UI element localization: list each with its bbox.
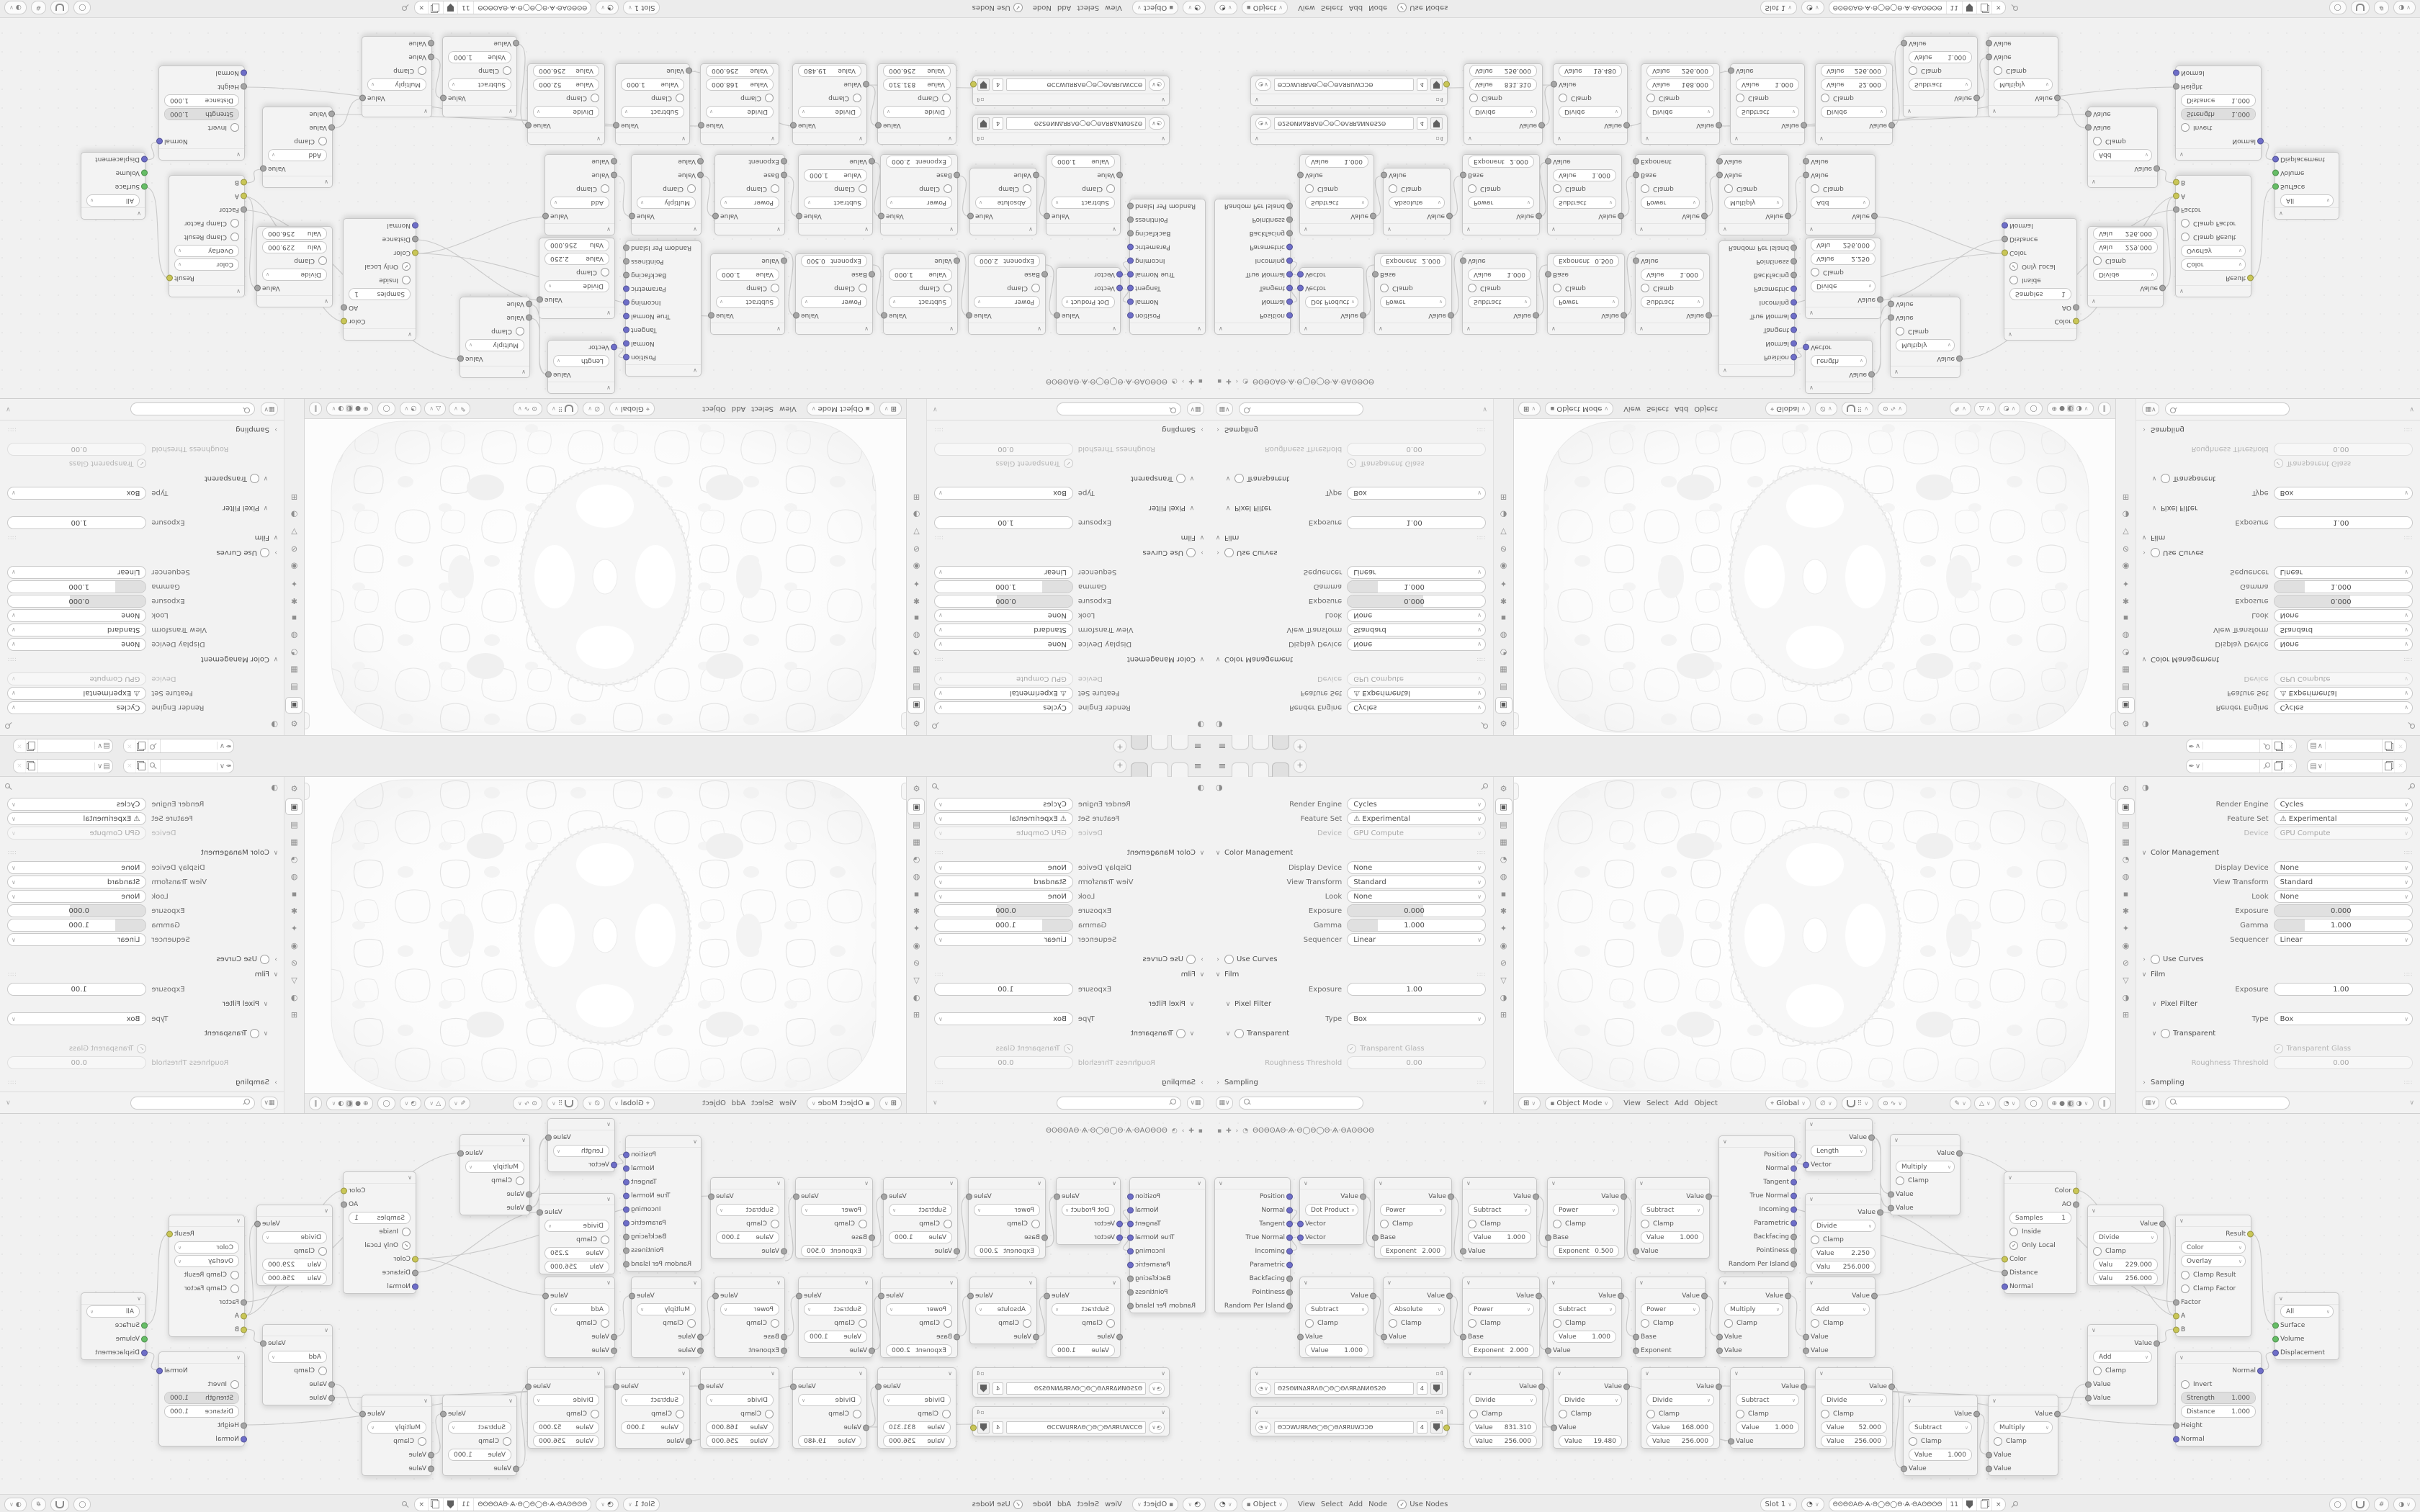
input-device[interactable]: GPU Compute∨ (7, 672, 146, 685)
workspace-tab-active[interactable] (1131, 762, 1148, 777)
operation-select[interactable]: Power∨ (1380, 1204, 1446, 1216)
output-socket[interactable] (1286, 285, 1293, 292)
properties-tab-constraints[interactable]: ⊘ (909, 955, 925, 971)
value-field-value[interactable]: Value52.000 (1821, 78, 1887, 91)
input-socket[interactable] (1986, 54, 1992, 60)
pin-icon[interactable] (148, 760, 161, 773)
input-render-engine[interactable]: Cycles∨ (934, 798, 1073, 811)
section-sampling[interactable]: ›Sampling∷∷ (7, 422, 279, 437)
properties-tab-physics[interactable]: ◉ (2118, 559, 2134, 574)
checkbox-clamp[interactable]: Clamp (616, 91, 689, 105)
section-pixel-filter[interactable]: ∨Pixel Filter (2141, 500, 2413, 516)
copy-icon[interactable] (1976, 1498, 1991, 1511)
node-node-group-2[interactable]: ∨▫4◔∨ΘƆƆWUЯRΛΘ◯Θ◯ΘΛЯRUWƆƆΘ4 (1250, 1406, 1448, 1436)
menu-select[interactable]: Select (1644, 405, 1672, 413)
operation-select[interactable]: Overlay∨ (2181, 245, 2246, 257)
output-socket[interactable] (1716, 1383, 1722, 1390)
input-display-device[interactable]: None∨ (934, 638, 1073, 651)
pivot-point[interactable]: ∅∨ (583, 402, 605, 415)
menu-select[interactable]: Select (748, 1099, 776, 1107)
properties-tab-tool[interactable]: ⚙ (909, 781, 925, 796)
node-header[interactable]: ∨ (2088, 1205, 2163, 1217)
input-socket[interactable] (141, 1349, 148, 1356)
input-socket[interactable] (526, 301, 532, 307)
output-socket[interactable] (1623, 122, 1630, 129)
material-users-count[interactable]: 11 (1946, 1498, 1962, 1511)
node-math-divide-a[interactable]: ∨ValueDivide∨ClampValue2.250Valu256.000 (1805, 238, 1881, 319)
properties-tab-particles[interactable]: ✦ (287, 576, 302, 591)
input-exposure[interactable]: 0.000 (7, 904, 146, 917)
output-socket[interactable] (1791, 300, 1797, 306)
checkbox-clamp[interactable]: Clamp (1719, 182, 1788, 196)
properties-tab-particles[interactable]: ✦ (2118, 576, 2134, 591)
checkbox-clamp[interactable]: Clamp (715, 182, 784, 196)
value-field-value[interactable]: Value1.000 (1468, 1231, 1531, 1243)
node-math-subtract-4[interactable]: ∨ValueSubtract∨ClampValue1.000Value (798, 1277, 873, 1358)
input-socket[interactable] (697, 158, 704, 165)
input-roughness-threshold[interactable]: 0.00 (934, 443, 1073, 456)
checkbox-clamp[interactable]: Clamp (1463, 1316, 1539, 1330)
value-field-value[interactable]: Value1.000 (889, 269, 952, 281)
output-socket[interactable] (1706, 312, 1712, 319)
output-socket[interactable] (613, 1383, 619, 1390)
node-math-divide-b[interactable]: ∨ValueDivide∨ClampValu229.000Valu256.000 (256, 226, 333, 307)
input-look[interactable]: None∨ (2274, 890, 2413, 903)
node-header[interactable]: ∨ (169, 285, 244, 297)
node-math-subtract-5[interactable]: ∨ValueSubtract∨ClampValue1.000Value (615, 1367, 690, 1449)
value-field-value[interactable]: Value1.000 (1305, 156, 1368, 168)
value-field-value[interactable]: Value52.000 (533, 1421, 599, 1434)
section-color-management[interactable]: ∨Color Management∷∷ (1214, 652, 1486, 667)
section-sampling[interactable]: ›Sampling∷∷ (2141, 1075, 2413, 1090)
output-socket[interactable] (875, 1383, 882, 1390)
value-field-value[interactable]: Value1.000 (1641, 1231, 1704, 1243)
properties-tab-particles[interactable]: ✦ (287, 921, 302, 936)
node-header[interactable]: ∨ (548, 382, 614, 393)
value-field-value[interactable]: Value256.000 (883, 1435, 951, 1447)
tool-measure[interactable]: △∨ (424, 402, 446, 415)
output-socket[interactable] (623, 258, 629, 265)
node-ambient-occlusion[interactable]: ∨ColorAOSamples1Inside✓Only LocalColorDi… (343, 218, 416, 341)
section-transparent[interactable]: ∨Transparent (934, 471, 1206, 486)
output-socket[interactable] (1701, 213, 1708, 220)
node-math-subtract-6[interactable]: ∨ValueSubtract∨ClampValue1.000Value (442, 36, 517, 117)
output-socket[interactable] (623, 1179, 629, 1185)
section-sampling[interactable]: ›Sampling∷∷ (934, 422, 1206, 437)
properties-tab-material[interactable]: ◑ (909, 990, 925, 1005)
operation-select[interactable]: Power∨ (974, 1204, 1040, 1216)
material-name[interactable]: ΘʘΘʘAΘ·Ѧ·Θ◯Θ◯Θ·Ѧ·ΘAʘΘʘΘ (1829, 1, 1946, 14)
mode-selector[interactable]: ▪Object Mode∨ (807, 1097, 875, 1110)
operation-select[interactable]: Divide∨ (1811, 1220, 1875, 1232)
properties-tab-object-data[interactable]: ▽ (2118, 973, 2134, 988)
material-users-count[interactable]: 11 (458, 1, 474, 14)
fake-user-icon[interactable] (1430, 79, 1443, 91)
material-users-count[interactable]: 11 (458, 1498, 474, 1511)
input-socket[interactable] (2173, 207, 2179, 213)
node-header[interactable]: ∨ (2088, 176, 2157, 187)
operation-select[interactable]: Divide∨ (798, 106, 861, 118)
output-socket[interactable] (1533, 312, 1539, 319)
tool-annotate[interactable]: ✎∨ (449, 1097, 470, 1110)
input-socket[interactable] (241, 1436, 247, 1442)
menu-node[interactable]: Node (1366, 4, 1390, 12)
output-socket[interactable] (966, 1193, 972, 1200)
node-math-divide-e[interactable]: ∨ValueDivide∨ClampValue168.000Value256.0… (700, 63, 779, 145)
input-display-device[interactable]: None∨ (7, 861, 146, 874)
node-header[interactable]: ∨ (701, 132, 779, 144)
node-math-power-1[interactable]: ∨ValuePower∨ClampBaseExponent2.000 (1374, 253, 1452, 335)
output-socket[interactable] (1801, 122, 1807, 129)
node-math-power-2[interactable]: ∨ValuePower∨ClampBaseExponent0.500 (1547, 1177, 1625, 1259)
output-socket[interactable] (1871, 213, 1878, 220)
node-header[interactable]: ∨ (1806, 307, 1881, 318)
output-socket[interactable] (341, 305, 347, 311)
node-header[interactable]: ∨ (1215, 323, 1290, 334)
section-film[interactable]: ∨Film∷∷ (934, 530, 1206, 545)
menu-select[interactable]: Select (1318, 1500, 1346, 1508)
output-socket[interactable] (1446, 1292, 1453, 1299)
node-header[interactable]: ∨ (528, 132, 604, 144)
input-feature-set[interactable]: ⚠ Experimental∨ (934, 687, 1073, 700)
properties-tab-particles[interactable]: ✦ (909, 576, 925, 591)
node-geometry-2[interactable]: ∨PositionNormalTangentTrue NormalIncomin… (1718, 240, 1795, 377)
node-header[interactable]: ∨ (881, 1277, 957, 1289)
menu-add[interactable]: Add (729, 1099, 748, 1107)
input-socket[interactable] (954, 1333, 960, 1340)
node-node-group-2[interactable]: ∨▫4◔∨ΘƆƆWUЯRΛΘ◯Θ◯ΘΛЯRUWƆƆΘ4 (1250, 76, 1448, 106)
properties-tab-physics[interactable]: ◉ (287, 559, 302, 574)
properties-tab-render[interactable]: ▣ (908, 798, 926, 815)
workspace-tab-active[interactable] (1131, 736, 1148, 750)
input-socket[interactable] (1633, 1248, 1639, 1254)
snap-target-button[interactable]: # (31, 1498, 47, 1511)
input-socket[interactable] (954, 258, 960, 264)
properties-tab-particles[interactable]: ✦ (909, 921, 925, 936)
node-material-output[interactable]: ∨All∨SurfaceVolumeDisplacement (2275, 1292, 2339, 1360)
node-math-divide-d[interactable]: ∨ValueDivide∨ClampValueValue19.480 (792, 1367, 867, 1449)
node-header[interactable]: ∨ (1719, 1277, 1788, 1289)
output-socket[interactable] (875, 122, 882, 129)
output-socket[interactable] (166, 275, 173, 282)
properties-tab-output[interactable]: ▤ (1496, 680, 1512, 695)
checkbox[interactable] (250, 1029, 259, 1038)
checkbox-clamp[interactable]: Clamp (970, 182, 1036, 196)
operation-select[interactable]: Power∨ (1468, 197, 1534, 209)
datablock-icon[interactable]: ◔∨ (1149, 1382, 1165, 1395)
properties-tab-texture[interactable]: ⊞ (2118, 490, 2134, 505)
section-pixel-filter[interactable]: ∨Pixel Filter (7, 500, 279, 516)
operation-select[interactable]: Overlay∨ (174, 1255, 239, 1267)
node-header[interactable]: ∨ (1719, 223, 1788, 235)
workspace-tab-1[interactable] (1232, 736, 1249, 750)
node-math-power-2[interactable]: ∨ValuePower∨ClampBaseExponent0.500 (795, 253, 873, 335)
input-socket[interactable] (412, 236, 418, 243)
input-socket[interactable] (1033, 172, 1039, 179)
section-performance[interactable]: ›Performance⁝≡∷∷ (934, 420, 1206, 422)
node-header[interactable]: ∨ (362, 105, 431, 117)
output-socket[interactable] (1791, 1261, 1797, 1267)
view-layer-selector[interactable]: ▤∨ × (2307, 739, 2407, 753)
overlays-toggle[interactable]: ◑∨ (2393, 1498, 2416, 1511)
input-socket[interactable] (697, 1333, 704, 1340)
node-header[interactable]: ∨ (1806, 1119, 1872, 1130)
copy-icon[interactable] (1976, 1, 1991, 14)
operation-select[interactable]: Absolute∨ (975, 1303, 1031, 1315)
input-socket[interactable] (2002, 250, 2008, 256)
input-socket[interactable] (1986, 40, 1992, 47)
output-socket[interactable] (629, 213, 635, 220)
output-socket[interactable] (1360, 312, 1366, 319)
editor-type-button[interactable]: ▦∨ (2142, 1097, 2159, 1110)
node-header[interactable]: ∨ (1731, 1368, 1804, 1380)
output-socket[interactable] (878, 1292, 884, 1299)
operation-select[interactable]: Add∨ (1811, 1303, 1870, 1315)
operation-select[interactable]: Divide∨ (262, 269, 327, 281)
input-socket[interactable] (611, 344, 617, 351)
snapping-toggle[interactable] (2351, 1498, 2370, 1511)
properties-tab-scene[interactable]: ◔ (909, 645, 925, 660)
node-math-divide-c[interactable]: ∨ValueDivide∨ClampValue831.310Value256.0… (1464, 63, 1543, 145)
output-socket[interactable] (1533, 1193, 1539, 1200)
input-socket[interactable] (1460, 172, 1466, 179)
scene-selector[interactable]: ✒∨ × (2186, 759, 2298, 773)
material-slot-selector[interactable]: Slot 1∨ (623, 1498, 660, 1511)
checkbox-clamp[interactable]: Clamp (1300, 1316, 1373, 1330)
copy-icon[interactable] (26, 760, 38, 773)
menu-view[interactable]: View (1621, 1099, 1644, 1107)
output-socket[interactable] (1791, 258, 1797, 265)
checkbox-clamp[interactable]: Clamp (1806, 266, 1881, 279)
checkbox-clamp[interactable]: Clamp (884, 1217, 957, 1230)
value-field-value[interactable]: Value2.250 (1811, 253, 1875, 265)
input-socket[interactable] (1986, 1465, 1992, 1472)
checkbox-clamp[interactable]: Clamp (796, 282, 872, 295)
value-field-valu[interactable]: Valu256.000 (2093, 1272, 2158, 1284)
output-socket[interactable] (2054, 1410, 2061, 1417)
output-socket[interactable] (967, 213, 974, 220)
shading-mode-switch[interactable]: ⊕●◐◑∨ (2047, 1097, 2094, 1110)
menu-view[interactable]: View (776, 405, 799, 413)
shading-mode-0[interactable]: ⊕ (2052, 1100, 2058, 1107)
checkbox-clamp[interactable]: Clamp (1806, 182, 1875, 196)
node-geometry-1[interactable]: ∨PositionNormalTangentTrue NormalIncomin… (1214, 199, 1291, 335)
node-header[interactable]: ∨ (1554, 132, 1627, 144)
checkbox-clamp[interactable]: Clamp (1989, 1434, 2058, 1448)
input-socket[interactable] (2002, 1269, 2008, 1276)
input-socket[interactable] (1297, 1333, 1304, 1340)
workspace-tab-active[interactable] (1272, 762, 1289, 777)
properties-tab-output[interactable]: ▤ (287, 680, 302, 695)
section-pixel-filter[interactable]: ∨Pixel Filter (7, 996, 279, 1012)
checkbox-clamp[interactable]: Clamp (1904, 1434, 1977, 1448)
output-socket[interactable] (793, 312, 799, 319)
output-socket[interactable] (1791, 1179, 1797, 1185)
value-field-value[interactable]: Value1.000 (889, 1231, 952, 1243)
input-render-engine[interactable]: Cycles∨ (2274, 701, 2413, 714)
operation-select[interactable]: Subtract∨ (1305, 197, 1368, 209)
input-type[interactable]: Box∨ (7, 1012, 146, 1025)
node-header[interactable]: ∨ (2176, 1215, 2251, 1227)
input-sequencer[interactable]: Linear∨ (7, 566, 146, 579)
node-vector-math-length[interactable]: ∨ValueLength∨Vector (1805, 1118, 1873, 1172)
section-transparent[interactable]: ∨Transparent (2141, 1026, 2413, 1041)
output-socket[interactable] (629, 1292, 635, 1299)
checkbox-clamp[interactable]: Clamp (362, 1434, 431, 1448)
input-socket[interactable] (1716, 1333, 1723, 1340)
node-header[interactable]: ∨ (793, 1368, 866, 1380)
output-socket[interactable] (2159, 285, 2166, 292)
collapsed-use-curves[interactable]: ›Use Curves (7, 545, 279, 560)
operation-select[interactable]: Divide∨ (883, 106, 951, 118)
properties-tab-modifiers[interactable]: ✱ (287, 593, 302, 608)
snapping-toggle[interactable] (2351, 1, 2370, 14)
node-math-divide-c[interactable]: ∨ValueDivide∨ClampValue831.310Value256.0… (1464, 1367, 1543, 1449)
shader-type-selector[interactable]: ▪Object∨ (1132, 1, 1179, 14)
group-name[interactable]: ΘƆƆWUЯRΛΘ◯Θ◯ΘΛЯRUWƆƆΘ (1274, 1421, 1414, 1434)
properties-tab-world[interactable]: ◍ (2118, 628, 2134, 643)
tool-measure[interactable]: △∨ (1974, 1097, 1996, 1110)
pin-icon[interactable] (2407, 721, 2414, 729)
input-socket[interactable] (2272, 1336, 2279, 1342)
section-pixel-filter[interactable]: ∨Pixel Filter (1214, 996, 1486, 1012)
value-field-exponent[interactable]: Exponent2.000 (1380, 255, 1446, 267)
operation-select[interactable]: Power∨ (1553, 296, 1619, 308)
operation-select[interactable]: Divide∨ (706, 1394, 774, 1406)
fake-user-icon[interactable] (977, 79, 990, 91)
output-socket[interactable] (1127, 258, 1134, 264)
checkbox-clamp[interactable]: Clamp (1464, 1407, 1542, 1421)
node-math-multiply-3[interactable]: ∨ValueMultiply∨ClampValueValue (1988, 36, 2058, 117)
toolbar-toggle[interactable] (901, 712, 906, 729)
input-socket[interactable] (241, 1422, 247, 1428)
input-roughness-threshold[interactable]: 0.00 (1347, 443, 1486, 456)
operation-select[interactable]: Divide∨ (1559, 1394, 1622, 1406)
unlink-icon[interactable]: × (1991, 1, 2005, 14)
output-socket[interactable] (2154, 1340, 2160, 1346)
node-header[interactable]: ∨ (344, 1172, 416, 1184)
output-socket[interactable] (341, 318, 347, 325)
properties-tab-render[interactable]: ▣ (286, 798, 303, 815)
input-roughness-threshold[interactable]: 0.00 (2274, 1056, 2413, 1069)
properties-tab-render[interactable]: ▣ (2117, 697, 2135, 714)
input-gamma[interactable]: 1.000 (1347, 580, 1486, 593)
operation-select[interactable]: Divide∨ (1646, 106, 1714, 118)
workspace-tab-1[interactable] (1171, 736, 1188, 750)
input-socket[interactable] (2173, 179, 2179, 186)
operation-select[interactable]: Power∨ (720, 197, 779, 209)
value-field-value[interactable]: Value1.000 (1641, 269, 1704, 281)
group-users-count[interactable]: 4 (1417, 1421, 1428, 1434)
material-browser[interactable]: ◔∨ (596, 1, 619, 14)
checkbox-invert[interactable]: Invert (2176, 121, 2261, 135)
node-math-subtract-5[interactable]: ∨ValueSubtract∨ClampValue1.000Value (615, 63, 690, 145)
checkbox-clamp-result[interactable]: Clamp Result (2176, 230, 2251, 244)
input-socket[interactable] (141, 184, 148, 190)
node-math-divide-e[interactable]: ∨ValueDivide∨ClampValue168.000Value256.0… (1641, 1367, 1720, 1449)
output-socket[interactable] (1286, 230, 1293, 237)
overlays-toggle[interactable]: ◑∨ (2393, 1, 2416, 14)
output-socket[interactable] (1443, 1425, 1450, 1431)
properties-tab-constraints[interactable]: ⊘ (1496, 541, 1512, 557)
node-header[interactable]: ∨ (2004, 328, 2076, 340)
input-socket[interactable] (1545, 1347, 1551, 1354)
properties-tab-world[interactable]: ◍ (909, 869, 925, 884)
value-field-strength[interactable]: Strength1.000 (2181, 108, 2256, 120)
node-bump[interactable]: ∨NormalInvertStrength1.000Distance1.000H… (2175, 66, 2262, 161)
workspace-tab-2[interactable] (1151, 736, 1168, 750)
pin-icon[interactable] (403, 1501, 410, 1508)
checkbox[interactable] (1224, 955, 1234, 964)
output-socket[interactable] (698, 1383, 704, 1390)
value-field-value[interactable]: Value168.000 (706, 1421, 774, 1434)
pin-icon[interactable] (933, 721, 940, 729)
output-socket[interactable] (1127, 1234, 1134, 1241)
input-socket[interactable] (1381, 1333, 1387, 1340)
view-layer-selector[interactable]: ▤∨ × (2307, 759, 2407, 773)
input-look[interactable]: None∨ (7, 609, 146, 622)
input-exposure[interactable]: 1.00 (2274, 516, 2413, 529)
output-socket[interactable] (1127, 1220, 1134, 1227)
properties-tab-particles[interactable]: ✦ (2118, 921, 2134, 936)
input-gamma[interactable]: 1.000 (2274, 580, 2413, 593)
datablock-icon[interactable]: ◔∨ (1149, 118, 1165, 130)
input-socket[interactable] (2272, 1349, 2279, 1356)
node-header[interactable]: ∨ (1464, 1368, 1542, 1380)
properties-tab-physics[interactable]: ◉ (1496, 938, 1512, 953)
transform-orientation[interactable]: ⌖Global∨ (609, 402, 655, 415)
value-field-distance[interactable]: Distance1.000 (164, 94, 239, 107)
output-socket[interactable] (623, 1233, 629, 1240)
output-socket[interactable] (1877, 1209, 1883, 1215)
output-socket[interactable] (1286, 1248, 1293, 1254)
viewport-canvas[interactable] (305, 419, 906, 735)
shader-type-selector[interactable]: ▪Object∨ (1132, 1498, 1179, 1511)
node-header[interactable]: ∨▫4 (1251, 1407, 1447, 1418)
operation-select[interactable]: Length∨ (553, 355, 609, 367)
output-socket[interactable] (1286, 1220, 1293, 1227)
checkbox-clamp[interactable]: Clamp (970, 1316, 1036, 1330)
operation-select[interactable]: Dot Product∨ (1062, 1204, 1115, 1216)
operation-select[interactable]: Subtract∨ (1305, 1303, 1368, 1315)
operation-select[interactable]: Divide∨ (2093, 269, 2158, 281)
output-socket[interactable] (1286, 203, 1293, 210)
operation-select[interactable]: Subtract∨ (1553, 197, 1616, 209)
input-gamma[interactable]: 1.000 (934, 580, 1073, 593)
node-header[interactable]: ∨ (1806, 223, 1875, 235)
search-input[interactable] (130, 403, 255, 416)
output-socket[interactable] (2154, 166, 2160, 172)
properties-tab-constraints[interactable]: ⊘ (2118, 955, 2134, 971)
pause-button[interactable]: ‖ (2098, 1097, 2112, 1110)
section-performance[interactable]: ›Performance⁝≡∷∷ (7, 420, 279, 422)
operation-select[interactable]: Subtract∨ (621, 1394, 684, 1406)
menu-view[interactable]: View (1295, 4, 1318, 12)
input-socket[interactable] (1888, 315, 1894, 321)
output-socket[interactable] (2257, 138, 2264, 145)
tool-visibility[interactable]: ◔∨ (1999, 1097, 2021, 1110)
node-header[interactable]: ∨ (548, 1119, 614, 1130)
input-socket[interactable] (1986, 1452, 1992, 1458)
node-header[interactable]: ∨ (616, 132, 689, 144)
output-socket[interactable] (1446, 213, 1453, 220)
output-socket[interactable] (712, 1292, 719, 1299)
input-socket[interactable] (1633, 172, 1639, 179)
value-field-exponent[interactable]: Exponent2.000 (886, 156, 952, 168)
node-math-subtract-4[interactable]: ∨ValueSubtract∨ClampValue1.000Value (1547, 1277, 1622, 1358)
output-socket[interactable] (1973, 1410, 1980, 1417)
output-socket[interactable] (1286, 1234, 1293, 1241)
